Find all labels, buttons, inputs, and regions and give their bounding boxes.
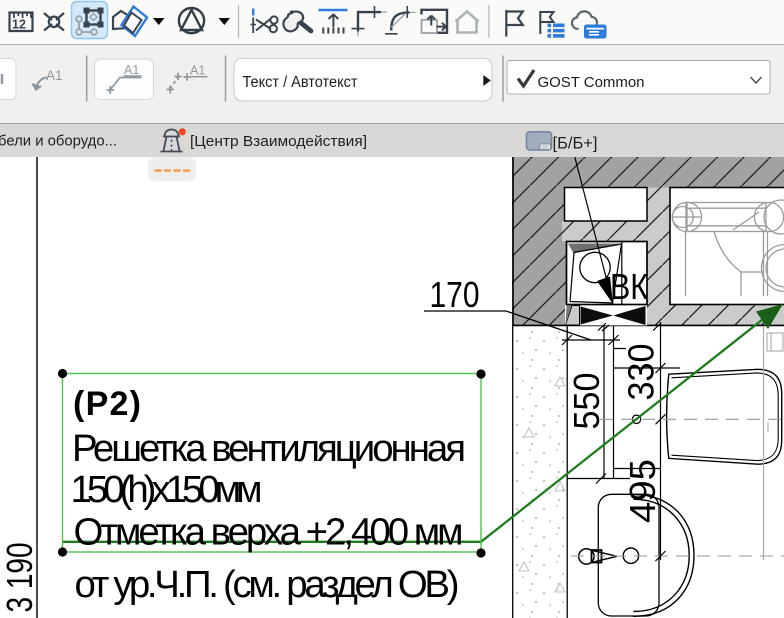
svg-text:Отметка верха +2,400 мм: Отметка верха +2,400 мм	[74, 511, 464, 554]
svg-text:бели и оборудо...: бели и оборудо...	[0, 132, 117, 149]
svg-text:[Б/Б+]: [Б/Б+]	[553, 134, 598, 153]
svg-text:A1: A1	[46, 68, 63, 83]
svg-text:[Центр Взаимодействия]: [Центр Взаимодействия]	[190, 134, 367, 150]
svg-text:Текст / Автотекст: Текст / Автотекст	[243, 74, 358, 91]
svg-text:12: 12	[12, 18, 26, 32]
svg-text:(Р2): (Р2)	[73, 385, 141, 423]
svg-text:495: 495	[622, 459, 663, 523]
svg-text:GOST Common: GOST Common	[538, 74, 645, 91]
svg-text:ВК: ВК	[610, 266, 648, 307]
svg-text:3 190: 3 190	[0, 543, 40, 613]
svg-text:550: 550	[566, 373, 607, 430]
svg-text:A1: A1	[124, 63, 139, 77]
svg-text:Решетка вентиляционная: Решетка вентиляционная	[72, 427, 466, 470]
svg-text:150(h)х150мм: 150(h)х150мм	[71, 468, 263, 511]
svg-text:170: 170	[430, 274, 480, 315]
svg-text:A1: A1	[190, 64, 205, 78]
svg-text:от ур.Ч.П. (см. раздел ОВ): от ур.Ч.П. (см. раздел ОВ)	[75, 563, 460, 606]
svg-text:330: 330	[621, 344, 662, 401]
